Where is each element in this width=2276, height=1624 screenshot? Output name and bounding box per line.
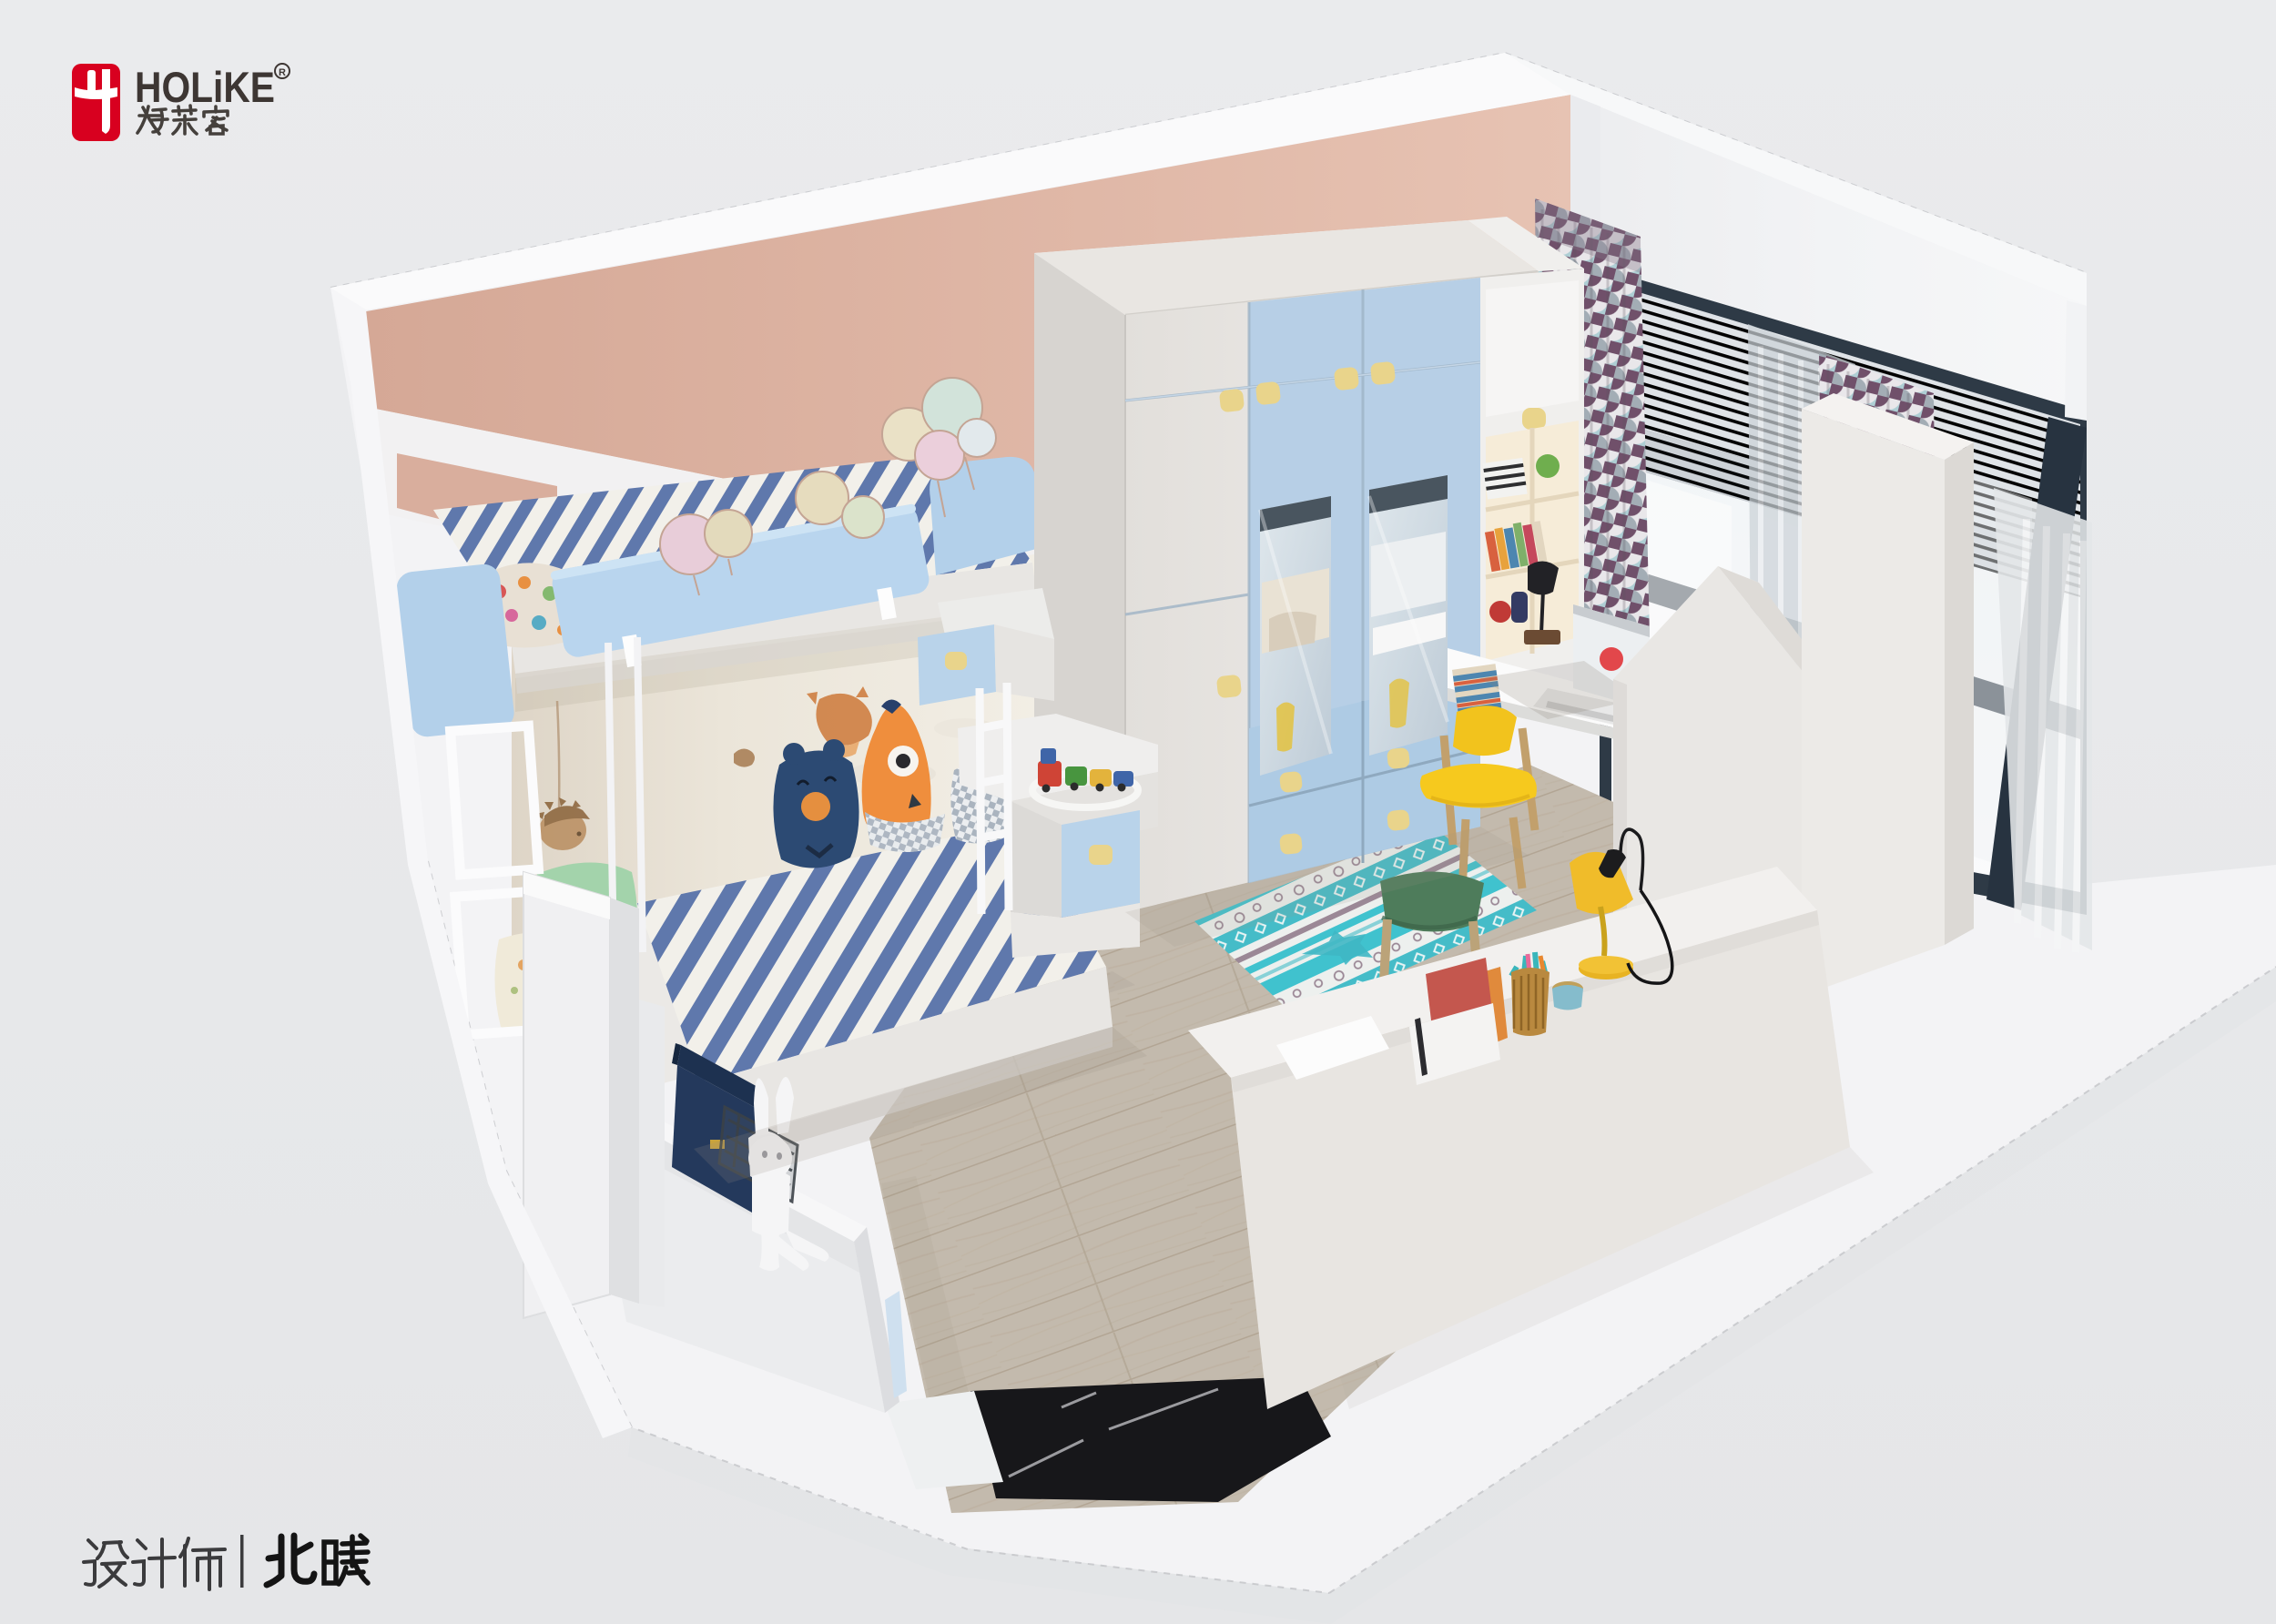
svg-text:HOLiKE: HOLiKE: [135, 63, 275, 111]
svg-text:R: R: [279, 67, 286, 78]
